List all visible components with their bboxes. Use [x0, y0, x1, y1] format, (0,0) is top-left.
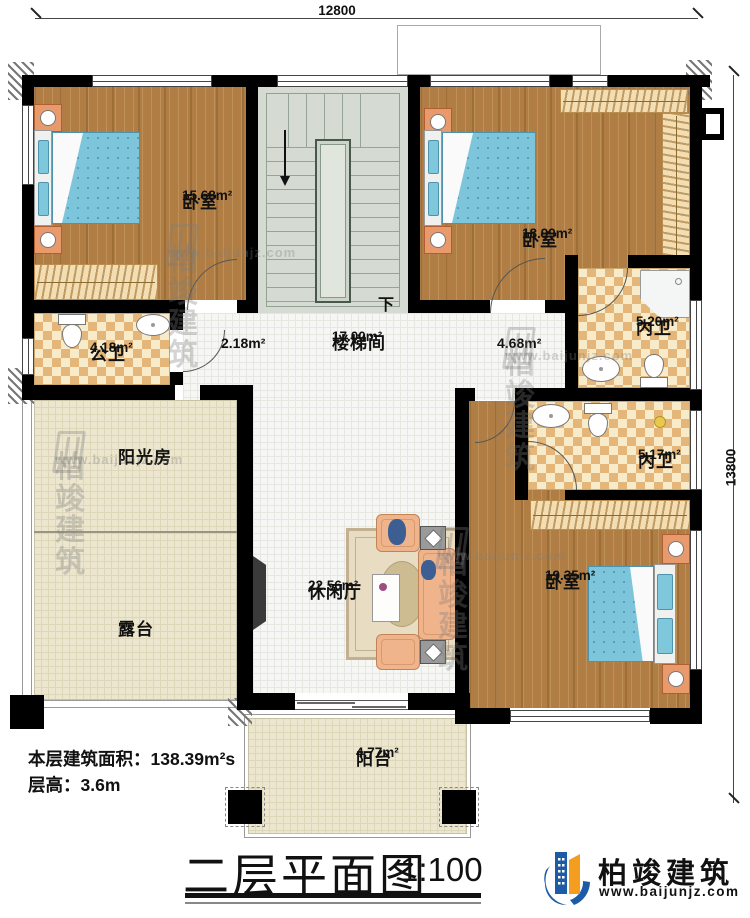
window	[92, 75, 212, 87]
person-figure	[388, 519, 406, 545]
bed-pillow	[428, 140, 439, 174]
armchair	[376, 634, 420, 670]
bed-pillow	[38, 140, 49, 174]
terrace-left-railing	[22, 400, 32, 700]
corner-column	[10, 695, 44, 729]
wall-segment	[22, 300, 185, 313]
wall-segment	[455, 401, 469, 710]
wall-segment	[170, 372, 183, 385]
window	[277, 75, 408, 87]
wall-segment	[690, 87, 702, 300]
toilet	[640, 354, 668, 388]
title-underline	[185, 893, 481, 898]
wall-segment	[515, 401, 528, 500]
scale-label: 1:100	[400, 851, 483, 889]
tv	[253, 556, 266, 630]
bed-pillow	[428, 182, 439, 216]
wardrobe	[662, 113, 690, 261]
bed-pillow	[38, 182, 49, 216]
right-dimension-label: 13800	[724, 438, 739, 498]
bed	[34, 130, 140, 226]
toilet	[58, 314, 86, 348]
wall-segment	[22, 75, 92, 87]
wall-segment	[22, 385, 175, 400]
dimension-tick	[728, 65, 739, 76]
wall-segment	[212, 75, 277, 87]
brand-logo-icon	[534, 846, 592, 906]
stair-arrow-head	[280, 176, 290, 186]
wall-segment	[237, 400, 253, 710]
wall-segment	[237, 693, 295, 710]
roof-eave-outline	[397, 25, 601, 75]
dimension-tick	[692, 7, 703, 18]
side-table	[420, 526, 446, 550]
sink	[532, 404, 570, 428]
balcony-column	[442, 790, 476, 824]
closet-rod	[560, 89, 688, 113]
dimension-tick	[30, 7, 41, 18]
terrace-bottom-railing	[22, 700, 237, 708]
window	[510, 710, 650, 722]
nightstand	[662, 664, 690, 694]
window	[690, 410, 702, 490]
balcony-frame	[244, 714, 471, 838]
wardrobe	[34, 264, 158, 300]
sliding-door-leaf	[352, 706, 406, 708]
sink	[582, 356, 620, 382]
window	[690, 530, 702, 670]
bed	[424, 130, 536, 226]
wall-segment	[408, 75, 430, 87]
balcony-column	[228, 790, 262, 824]
wall-segment	[608, 75, 710, 87]
brand-website: www.baijunjz.com	[599, 884, 740, 899]
bed-pillow	[657, 574, 673, 610]
stair-direction-arrow	[284, 130, 286, 178]
wall-protrusion-inner	[706, 114, 720, 134]
floor-plan: 12800 13800	[0, 0, 750, 918]
wall-segment	[408, 87, 420, 313]
floor-area-text: 本层建筑面积：138.39m²s	[28, 746, 235, 771]
wall-segment	[420, 300, 490, 313]
nightstand	[34, 104, 62, 132]
coffee-table	[372, 574, 400, 622]
wall-segment	[565, 268, 578, 388]
top-dimension-label: 12800	[305, 3, 369, 18]
bed	[588, 564, 690, 664]
sliding-door-leaf	[297, 702, 355, 704]
wall-segment	[550, 75, 572, 87]
top-dimension-line	[35, 18, 698, 19]
wall-segment	[22, 87, 34, 105]
wall-segment	[170, 313, 183, 330]
wall-segment	[628, 255, 702, 268]
wall-segment	[455, 388, 475, 401]
floor-drain	[654, 416, 666, 428]
balcony-floor	[248, 718, 467, 834]
window	[22, 338, 34, 375]
dimension-tick	[728, 792, 739, 803]
wall-segment	[565, 255, 578, 268]
wall-segment	[22, 185, 34, 338]
wall-segment	[455, 708, 510, 724]
window	[690, 300, 702, 390]
wall-segment	[515, 388, 702, 401]
wall-segment	[246, 87, 258, 313]
nightstand	[34, 226, 62, 254]
side-table	[420, 640, 446, 664]
nightstand	[424, 226, 452, 254]
window	[430, 75, 550, 87]
window	[22, 105, 34, 185]
stair-down-label: 下	[378, 291, 394, 315]
wall-segment	[200, 385, 253, 400]
nightstand	[662, 534, 690, 564]
person-figure	[421, 560, 436, 580]
bed-pillow	[657, 618, 673, 654]
title-underline-thin	[185, 902, 481, 904]
wall-segment	[237, 300, 258, 313]
wall-segment	[565, 490, 697, 500]
wall-segment	[650, 708, 702, 724]
stair-railing	[315, 139, 351, 303]
floor-height-text: 层高：3.6m	[28, 772, 120, 797]
terrace-divider-line	[34, 531, 237, 533]
sink	[136, 314, 170, 336]
wardrobe	[530, 500, 690, 530]
window	[572, 75, 608, 87]
toilet	[584, 403, 612, 437]
